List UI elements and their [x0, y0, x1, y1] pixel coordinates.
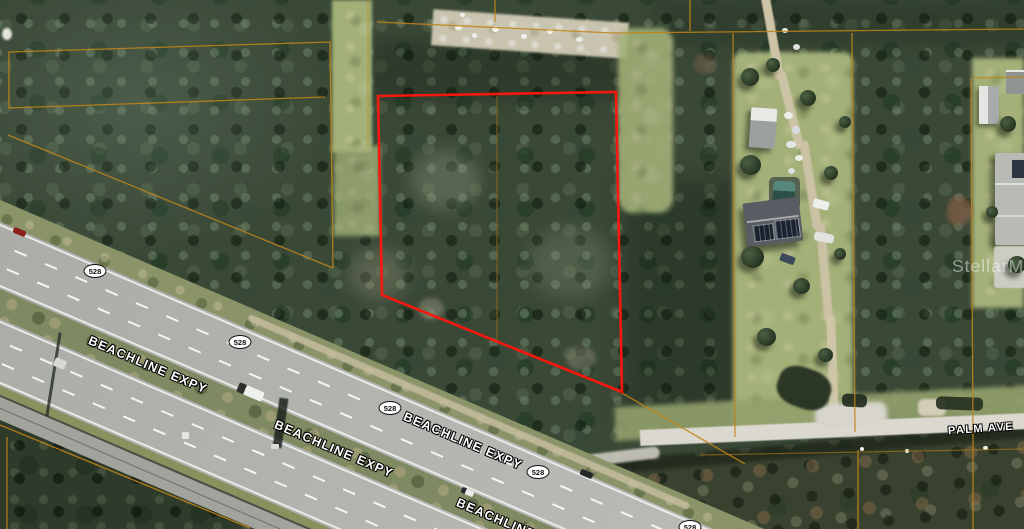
route-528-number: 528	[684, 523, 697, 529]
route-528-shield: 528	[229, 335, 252, 349]
route-528-number: 528	[234, 338, 247, 347]
parcel-lines	[0, 0, 1024, 529]
property-boundary-polygon	[378, 92, 622, 392]
route-528-shield: 528	[84, 264, 107, 278]
route-528-number: 528	[384, 404, 397, 413]
route-528-number: 528	[532, 468, 545, 477]
route-528-shield: 528	[679, 520, 702, 529]
route-528-number: 528	[89, 267, 102, 276]
mls-watermark: StellarMLS	[952, 256, 1024, 277]
route-528-shield: 528	[527, 465, 550, 479]
parcel-boundary-overlay	[0, 0, 1024, 529]
route-528-shield: 528	[379, 401, 402, 415]
aerial-map-screenshot: BEACHLINE EXPY BEACHLINE EXPY BEACHLINE …	[0, 0, 1024, 529]
